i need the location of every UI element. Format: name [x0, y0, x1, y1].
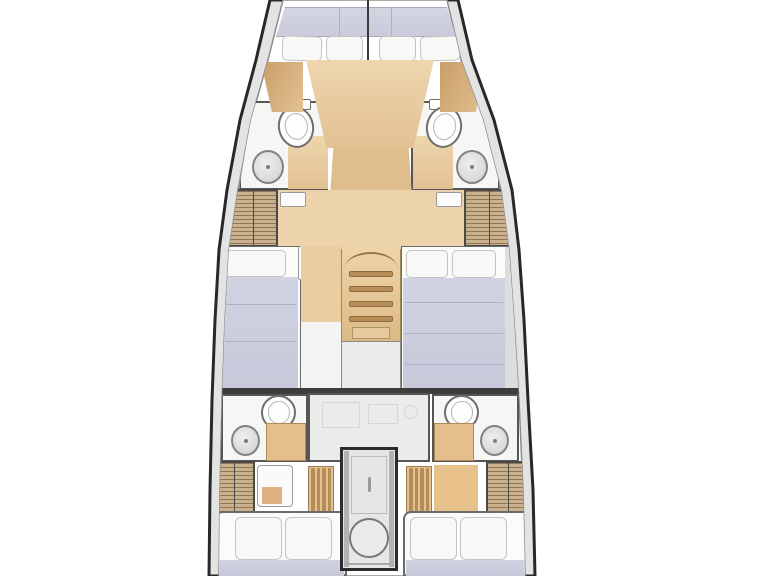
- stair-tread: [349, 301, 393, 307]
- mid-starboard-mattress: [403, 278, 505, 388]
- wardrobe-door-divider: [234, 463, 235, 512]
- stair-lower-step: [352, 327, 390, 339]
- step-slat: [322, 468, 326, 513]
- aft-port-pillow: [235, 517, 282, 560]
- toilet-seat: [268, 401, 290, 423]
- sink-icon-forward-port: [252, 150, 284, 184]
- engine-rail-left: [344, 451, 349, 567]
- mid-port-pillow: [222, 250, 286, 277]
- step-slat: [311, 468, 315, 513]
- step-slat: [317, 468, 321, 513]
- stair-tread: [349, 286, 393, 292]
- sink-icon-forward-starboard: [456, 150, 488, 184]
- mid-port-floor-white: [301, 322, 343, 390]
- galley-fitting: [368, 404, 398, 424]
- mid-port-mattress: [219, 277, 298, 388]
- wardrobe-door-divider: [508, 463, 509, 512]
- wardrobe-door-divider: [253, 191, 254, 245]
- step-slat: [328, 468, 332, 513]
- aft-starboard-mattress: [406, 560, 532, 576]
- engine-compartment: [340, 447, 398, 571]
- wardrobe-door-divider: [489, 191, 490, 245]
- step-slat: [426, 468, 430, 513]
- aft-port-counter: [266, 423, 306, 461]
- stair-tread: [349, 316, 393, 322]
- aft-port-mattress: [218, 560, 344, 576]
- step-slat: [415, 468, 419, 513]
- mid-starboard-pillow: [406, 250, 448, 278]
- aft-starboard-wood-block: [434, 465, 478, 515]
- engine-hatch-circle: [349, 518, 389, 558]
- shelf-forward-starboard: [436, 192, 462, 207]
- mattress-crease: [405, 333, 503, 334]
- floor-plan-canvas: [0, 0, 768, 576]
- aft-port-pillow: [285, 517, 332, 560]
- bow-centerline: [367, 0, 369, 62]
- companion-steps-aft-starboard: [406, 466, 432, 515]
- sink-drain: [266, 165, 270, 169]
- mattress-crease: [221, 341, 297, 342]
- toilet-seat: [282, 111, 310, 142]
- forward-berth-mattress: [276, 7, 456, 37]
- mattress-crease: [405, 364, 503, 365]
- toilet-seat: [430, 111, 458, 142]
- berth-pillow: [420, 35, 461, 61]
- stair-landing: [341, 341, 401, 390]
- sink-drain: [493, 439, 497, 443]
- mid-starboard-pillow: [452, 250, 496, 278]
- galley-fitting: [322, 402, 360, 428]
- sink-icon-aft-starboard: [480, 425, 509, 456]
- step-slat: [420, 468, 424, 513]
- sink-drain: [244, 439, 248, 443]
- berth-pillow: [326, 36, 363, 61]
- mid-port-floor-wood: [301, 246, 343, 322]
- sink-drain: [470, 165, 474, 169]
- aft-starboard-pillow: [410, 517, 457, 560]
- engine-rail-right: [389, 451, 394, 567]
- companion-steps-aft-port: [308, 466, 334, 515]
- engine-bottom-line: [345, 563, 393, 565]
- galley-fitting: [404, 405, 418, 419]
- berth-pillow: [379, 36, 416, 61]
- aft-starboard-counter: [434, 423, 474, 461]
- aft-port-wood-piece: [262, 487, 282, 504]
- step-slat: [409, 468, 413, 513]
- engine-label-mark: [368, 477, 371, 492]
- toilet-seat: [451, 401, 473, 423]
- sink-icon-aft-port: [231, 425, 260, 456]
- stair-tread: [349, 271, 393, 277]
- aft-starboard-pillow: [460, 517, 507, 560]
- berth-seam: [391, 7, 392, 37]
- mattress-crease: [405, 302, 503, 303]
- mattress-crease: [221, 304, 297, 305]
- berth-seam: [339, 7, 340, 37]
- berth-pillow: [282, 35, 323, 61]
- shelf-forward-port: [280, 192, 306, 207]
- central-console-table: [306, 60, 434, 148]
